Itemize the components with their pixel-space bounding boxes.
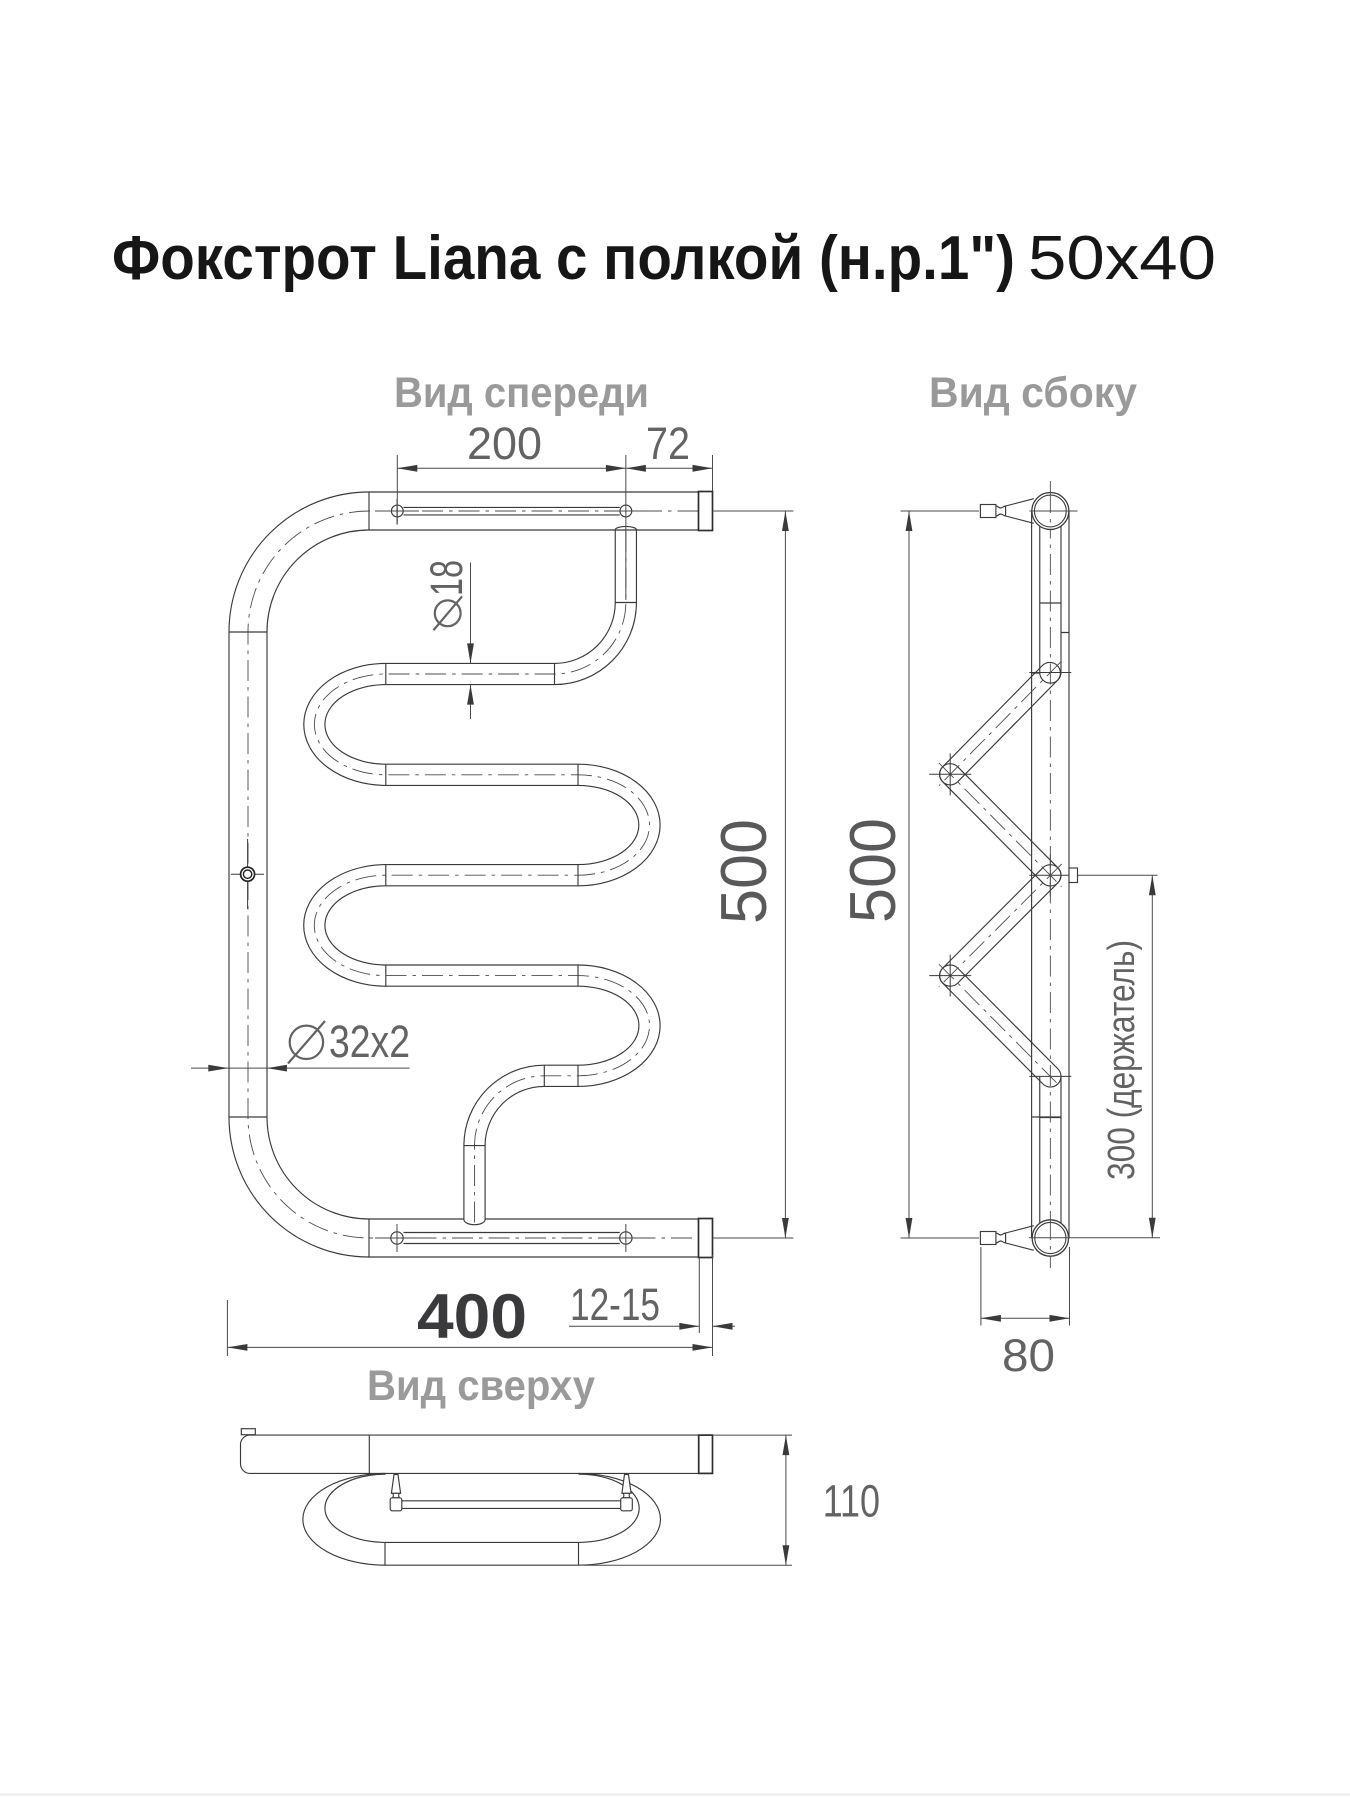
svg-text:12-15: 12-15 — [570, 1279, 660, 1330]
svg-text:300 (держатель): 300 (держатель) — [1101, 940, 1143, 1180]
svg-text:72: 72 — [646, 418, 690, 469]
svg-text:400: 400 — [417, 1282, 527, 1352]
svg-text:Фокстрот Liana с полкой (н.р.1: Фокстрот Liana с полкой (н.р.1") — [112, 224, 1015, 293]
svg-text:Вид сбоку: Вид сбоку — [929, 369, 1137, 417]
svg-text:18: 18 — [421, 560, 472, 596]
svg-text:32x2: 32x2 — [329, 1016, 410, 1067]
svg-text:200: 200 — [467, 418, 542, 469]
svg-text:80: 80 — [1002, 1330, 1055, 1381]
svg-text:50x40: 50x40 — [1028, 224, 1216, 293]
svg-text:Вид сверху: Вид сверху — [367, 1362, 595, 1410]
svg-text:Вид спереди: Вид спереди — [394, 369, 649, 417]
svg-text:500: 500 — [836, 818, 909, 923]
svg-text:110: 110 — [823, 1476, 880, 1527]
svg-text:500: 500 — [707, 819, 780, 924]
